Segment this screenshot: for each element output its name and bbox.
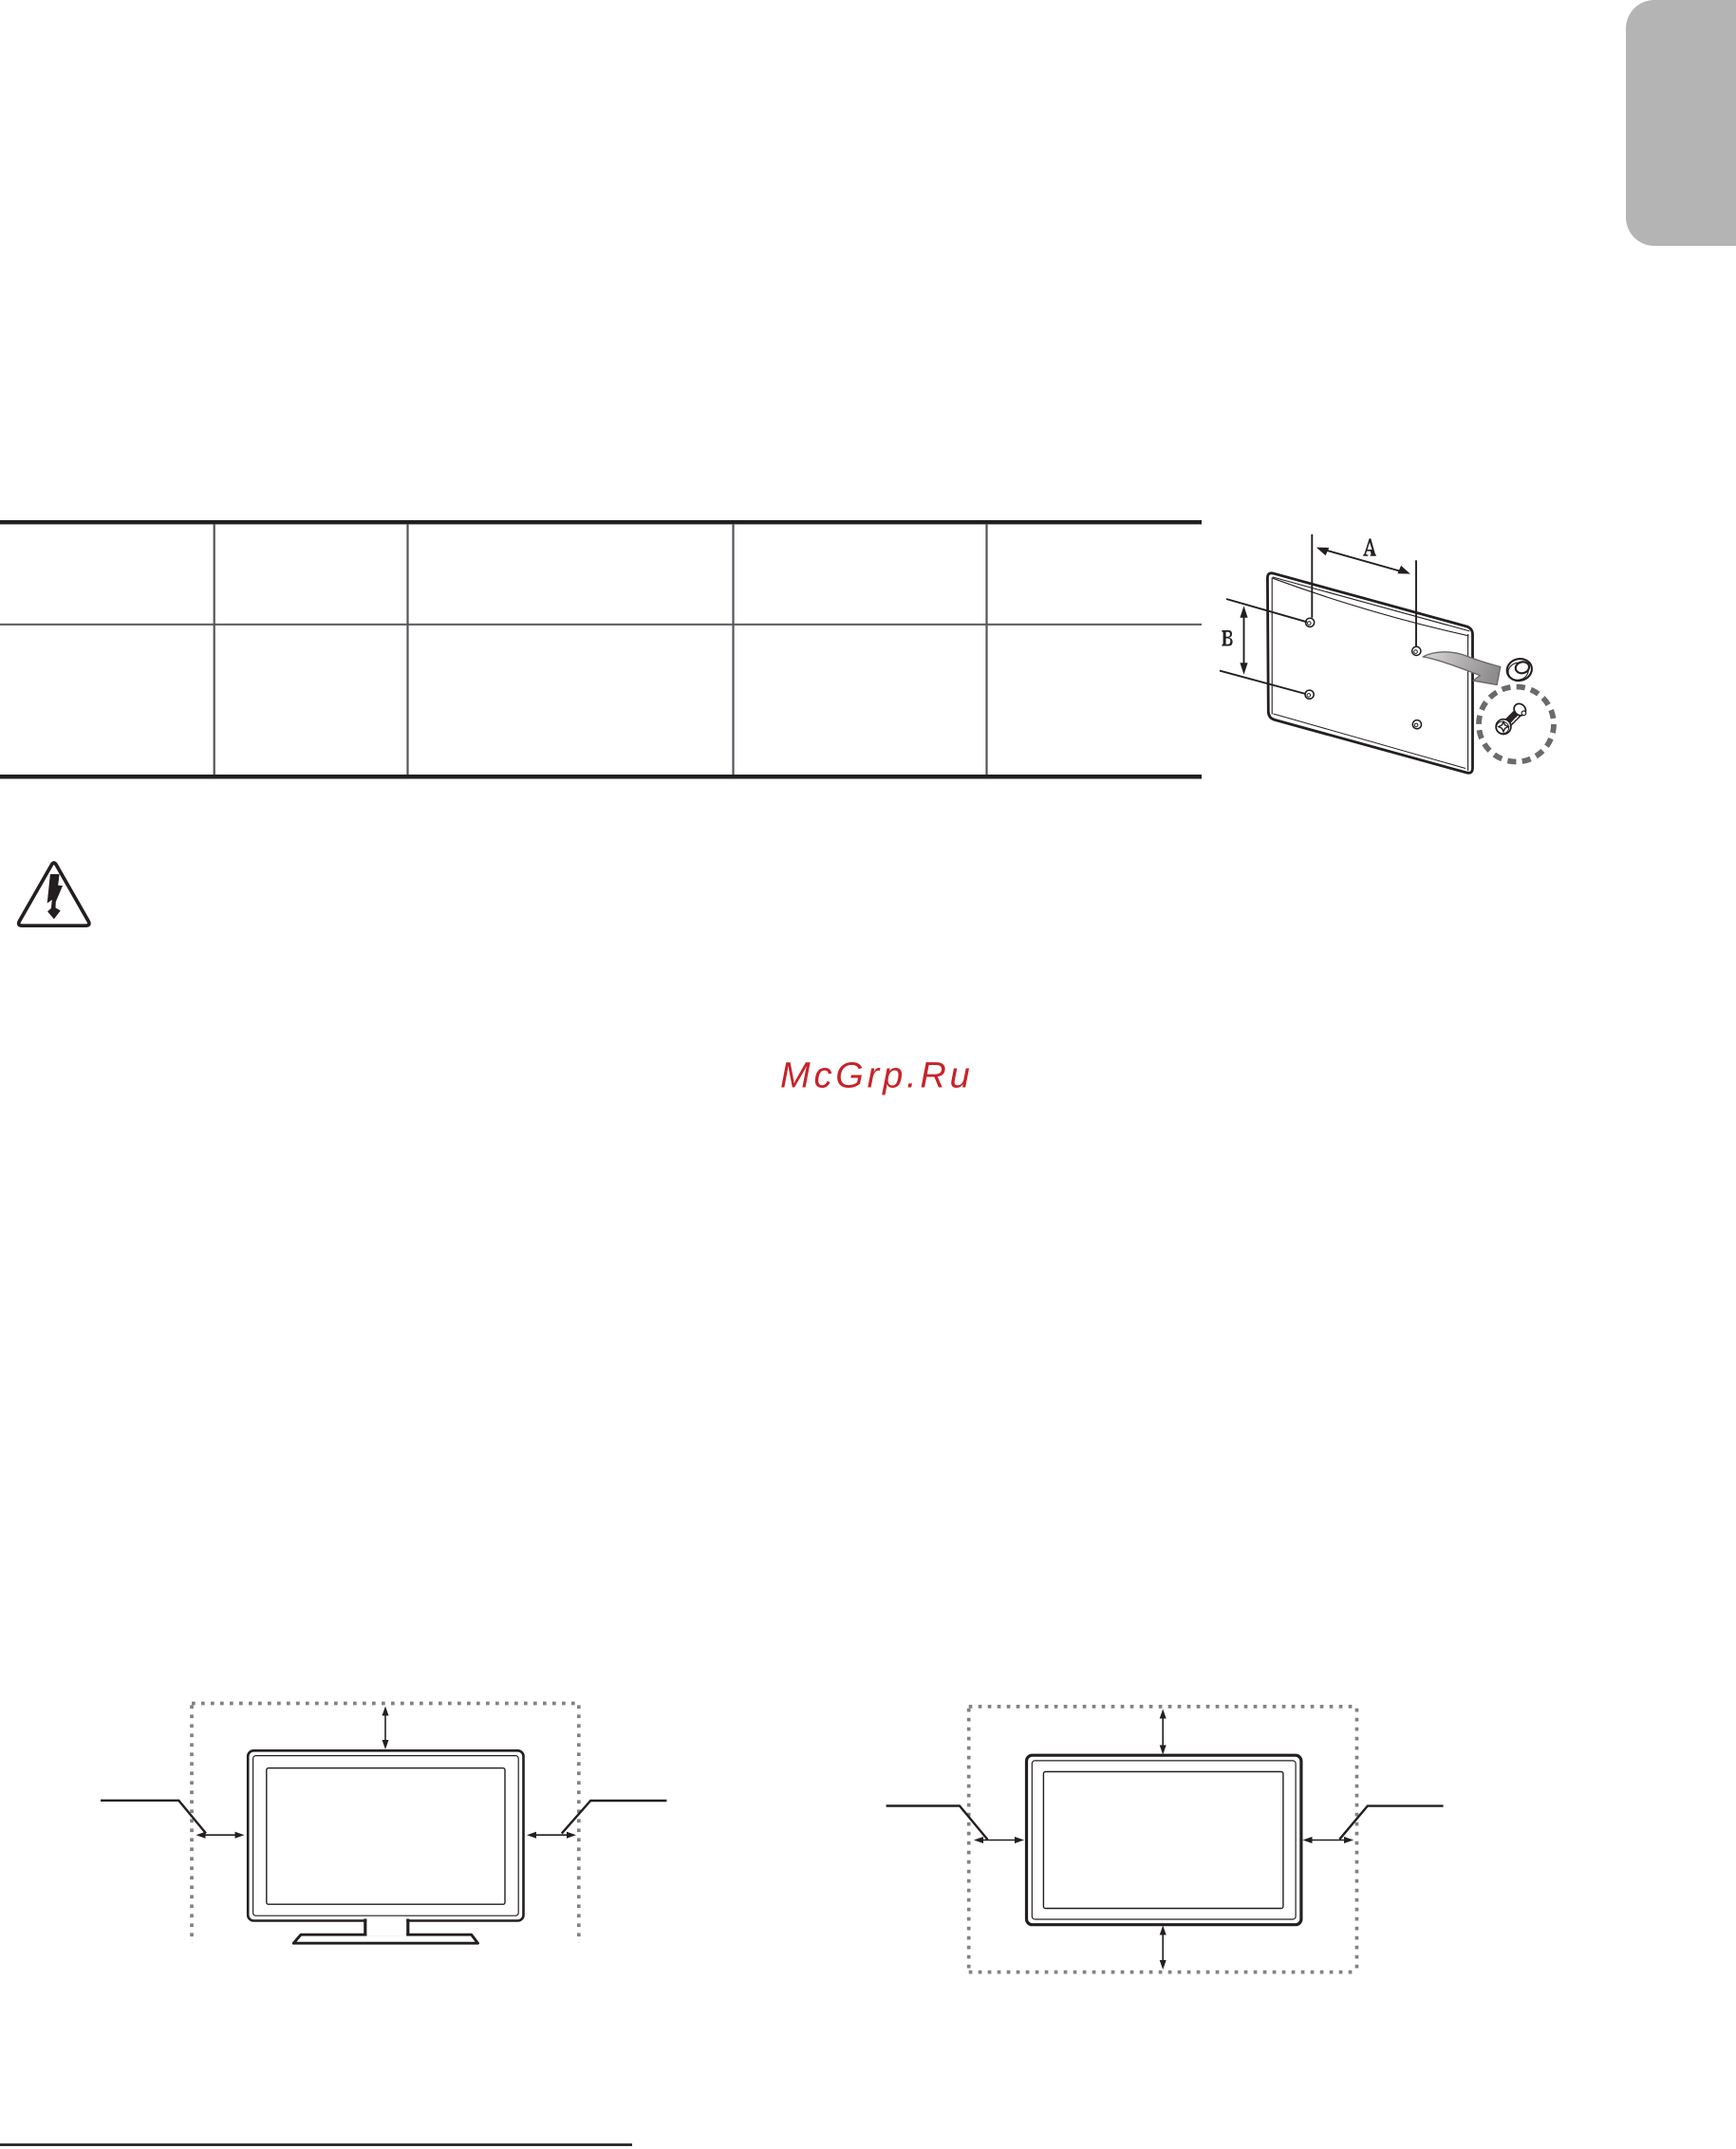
svg-text:McGrp.Ru: McGrp.Ru [780,1056,974,1095]
